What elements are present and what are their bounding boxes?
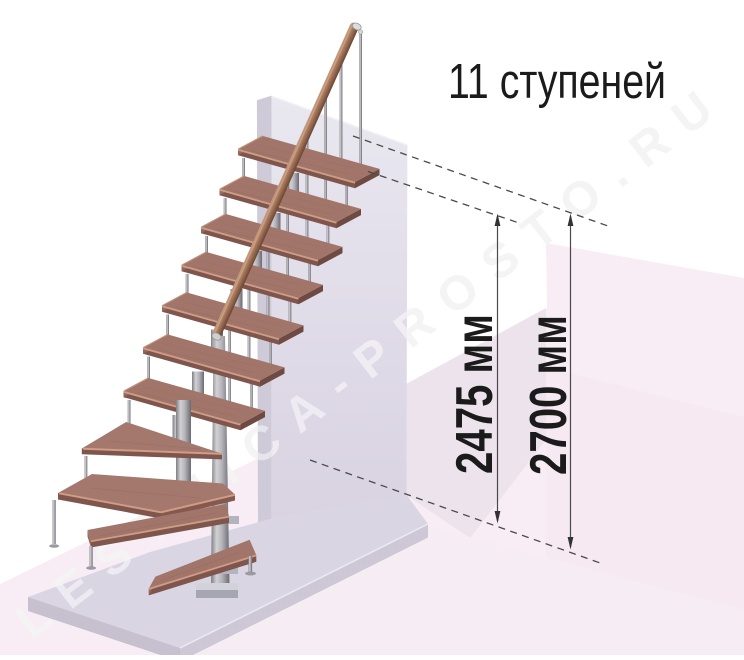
- svg-text:11 ступеней: 11 ступеней: [448, 55, 666, 109]
- svg-text:2700 мм: 2700 мм: [520, 315, 578, 475]
- svg-text:2475 мм: 2475 мм: [446, 314, 504, 474]
